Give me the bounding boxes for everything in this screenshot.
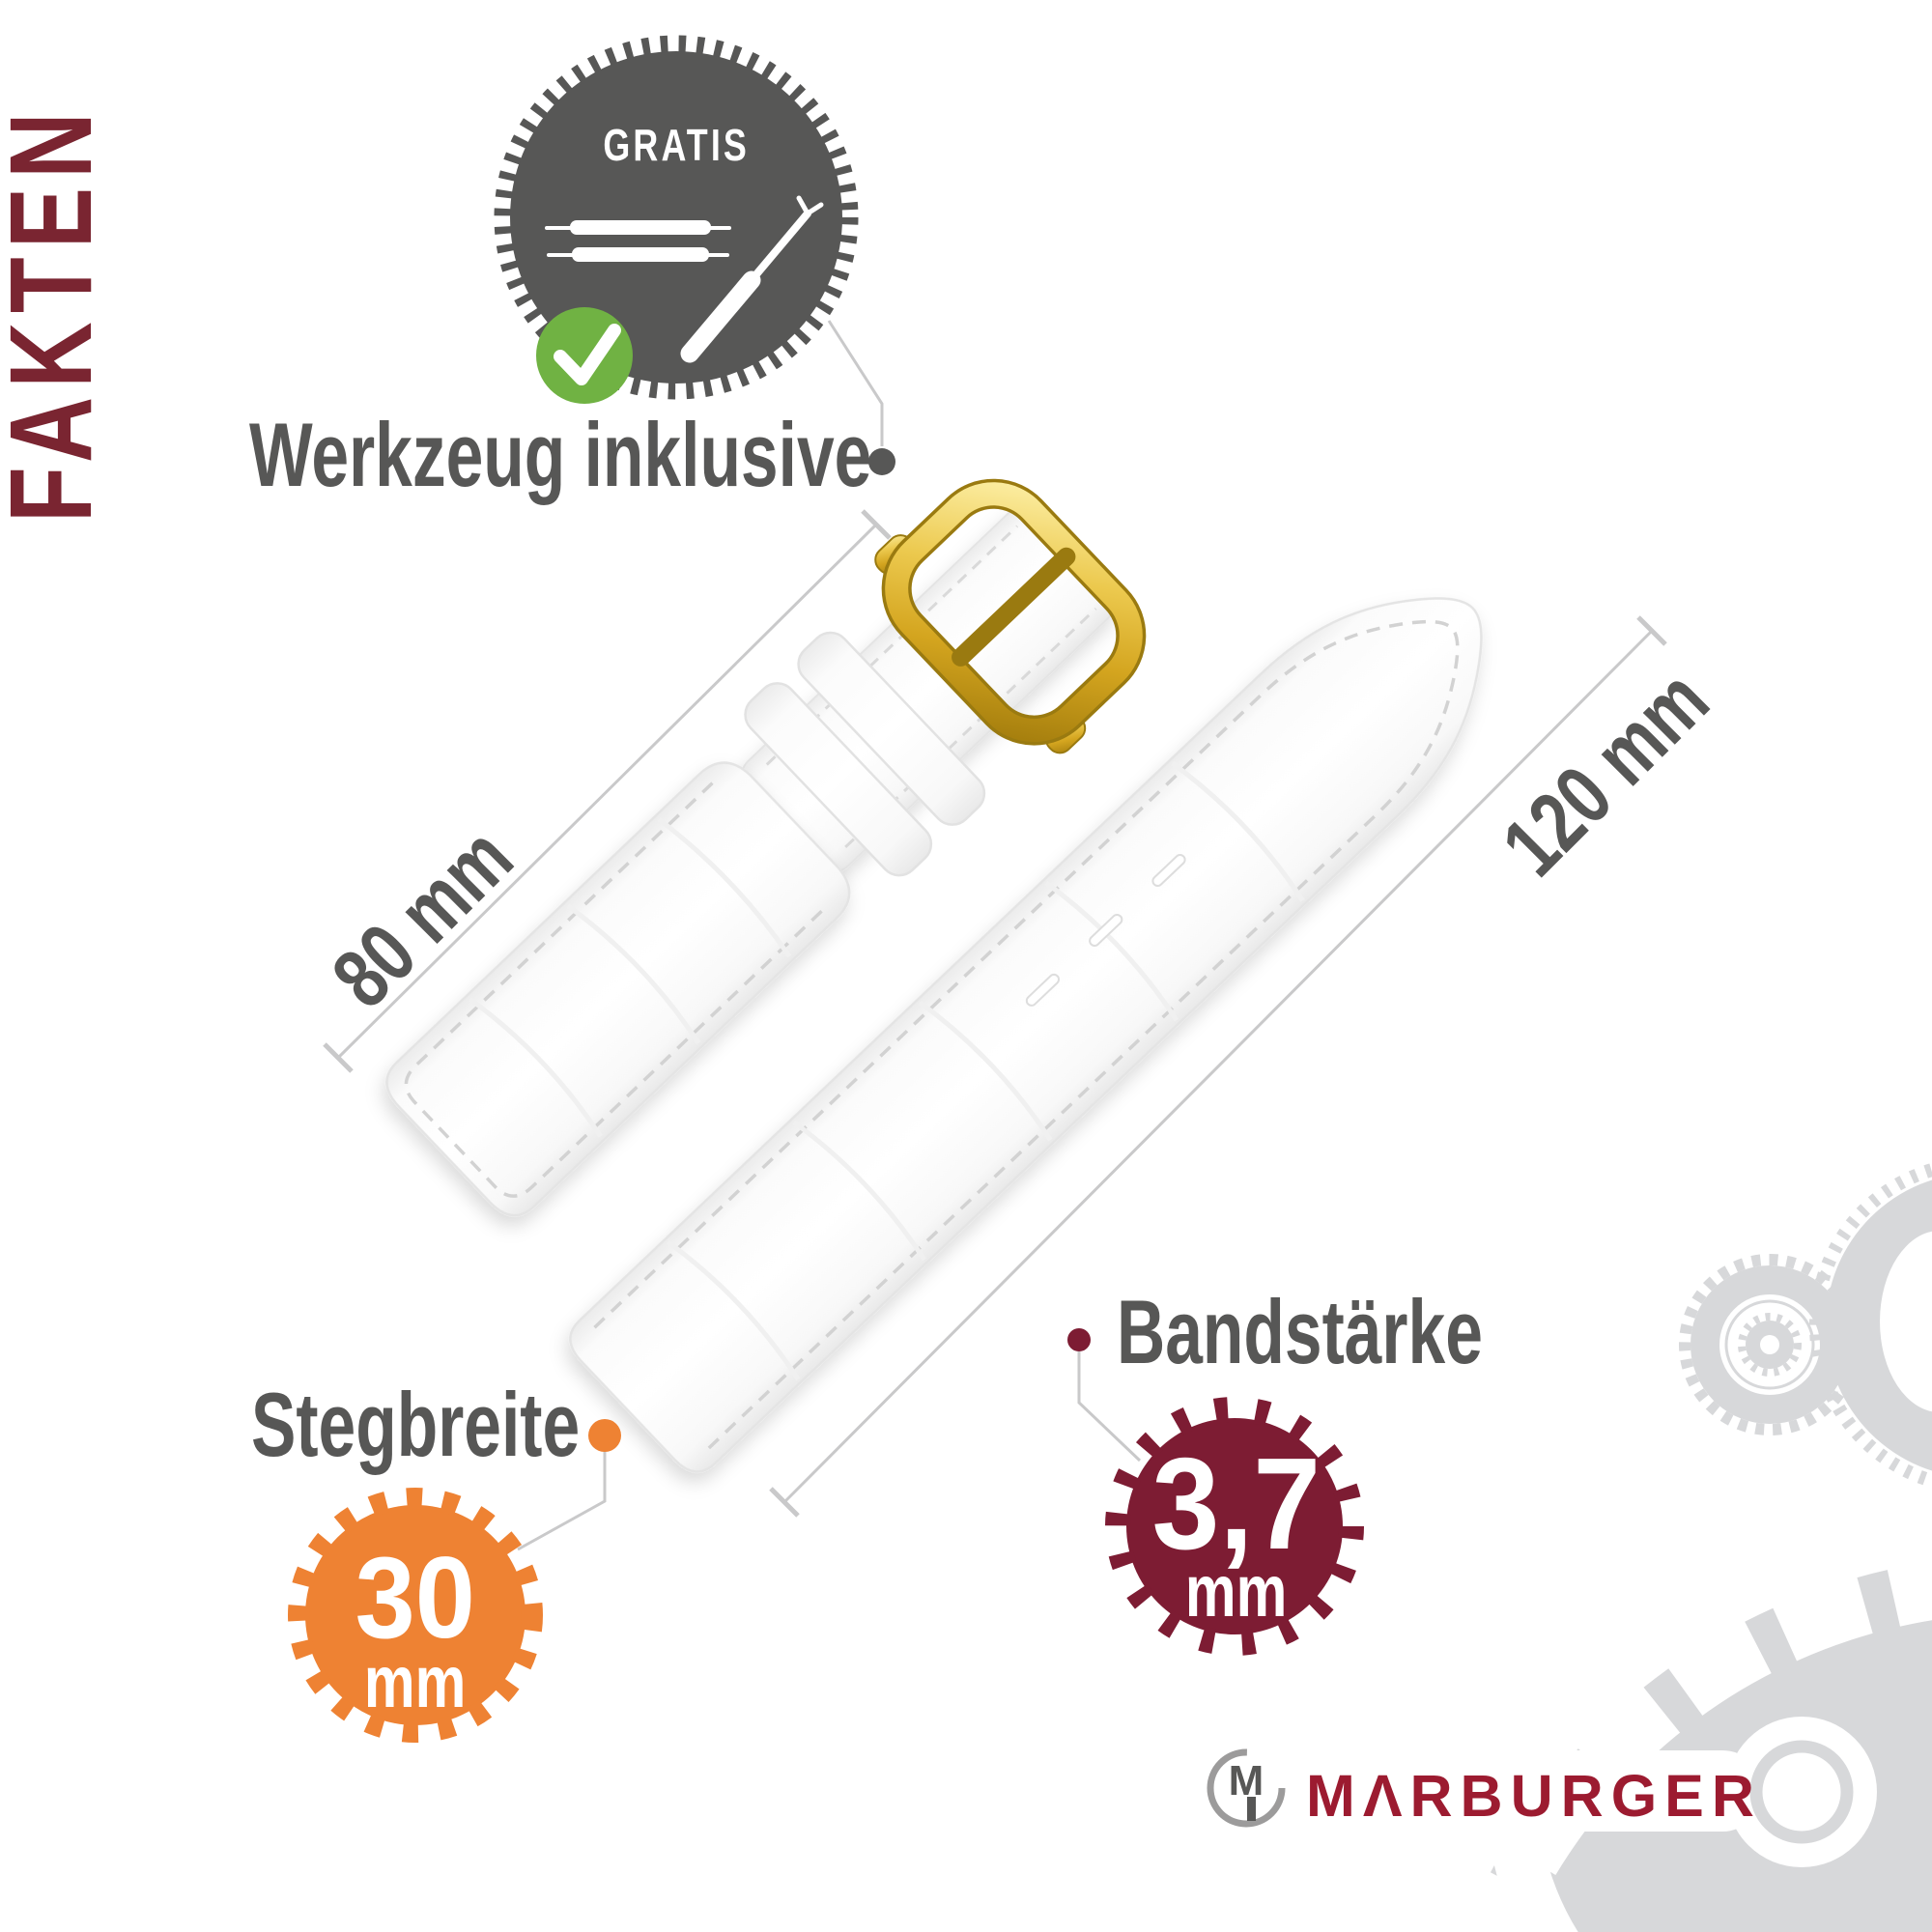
brand-name: MΛRBURGER — [1306, 1767, 1762, 1826]
brand-monogram: M — [1219, 1758, 1273, 1804]
product-infographic: FAKTEN GRATIS Werkzeug inklusive 80 mm 1… — [0, 0, 1932, 1932]
vertical-title-text: FAKTEN — [0, 103, 113, 523]
thickness-label: Bandstärke — [1117, 1287, 1611, 1378]
corner-gear-large-icon — [1463, 1502, 1932, 1932]
tool-note-label: Werkzeug inklusive — [249, 410, 1091, 500]
gratis-label: GRATIS — [531, 124, 821, 166]
artwork-layer — [0, 0, 1932, 1932]
lug-width-unit: mm — [309, 1644, 522, 1721]
gratis-badge-gear — [502, 43, 850, 404]
thickness-unit: mm — [1121, 1554, 1352, 1630]
dot-thickness — [1067, 1328, 1091, 1351]
edge-gear-icon — [1816, 1163, 1932, 1488]
vertical-title: FAKTEN — [0, 176, 113, 582]
check-icon — [536, 307, 633, 404]
lug-width-label: Stegbreite — [251, 1379, 696, 1470]
